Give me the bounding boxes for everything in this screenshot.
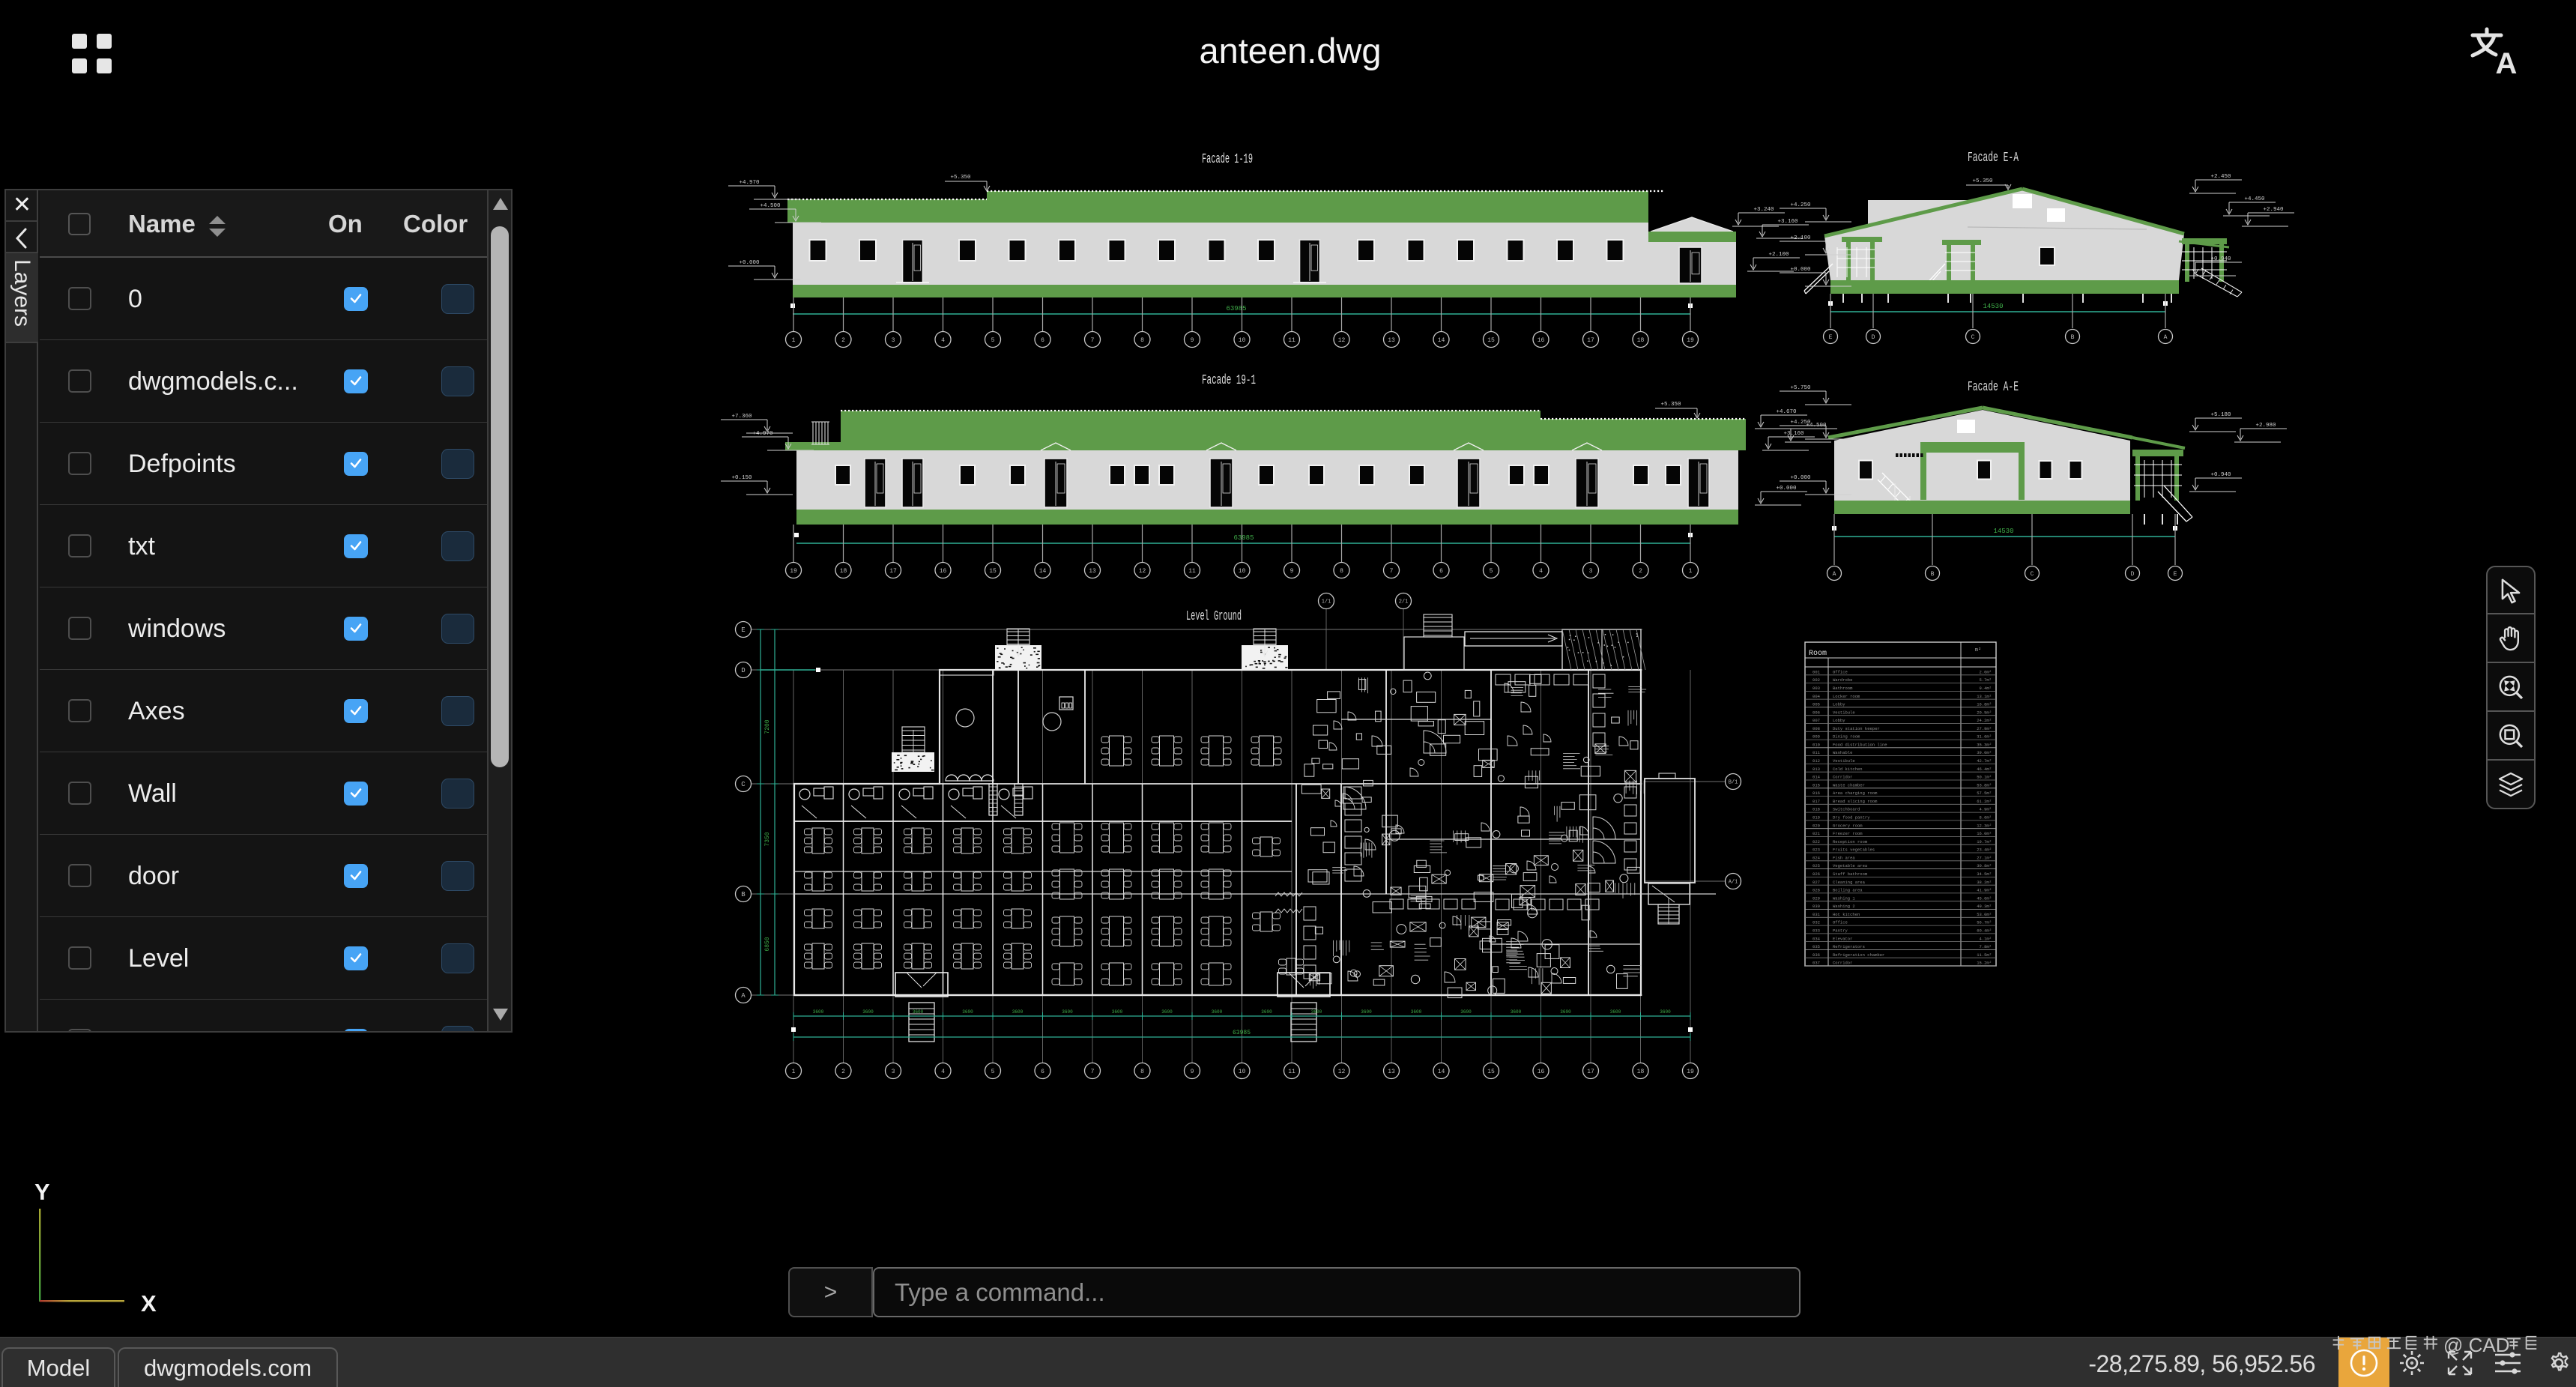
svg-text:15: 15 [1487,337,1495,344]
svg-text:Facade A-E: Facade A-E [1968,380,2019,395]
svg-text:Dining room: Dining room [1833,734,1860,740]
svg-text:Office: Office [1833,669,1848,674]
svg-text:3600: 3600 [1361,1009,1372,1015]
svg-text:+3.240: +3.240 [1753,207,1774,213]
svg-text:+3.160: +3.160 [1783,431,1804,437]
svg-text:15.2m²: 15.2m² [1977,961,1992,966]
svg-text:+5.350: +5.350 [1660,402,1681,408]
svg-text:16: 16 [1538,1069,1545,1075]
svg-text:Area charging room: Area charging room [1833,791,1878,796]
svg-text:A: A [1833,571,1836,578]
svg-text:033: 033 [1812,928,1820,934]
svg-text:+2.980: +2.980 [2255,423,2276,429]
svg-text:3600: 3600 [1161,1009,1173,1015]
svg-text:3600: 3600 [1112,1009,1123,1015]
svg-text:13.1m²: 13.1m² [1977,694,1992,699]
svg-text:7: 7 [1390,568,1394,575]
svg-text:+7.360: +7.360 [731,414,752,420]
svg-text:1: 1 [792,337,796,344]
svg-text:+0.000: +0.000 [1790,475,1811,481]
svg-text:Reception room: Reception room [1833,839,1868,844]
svg-text:30.8m²: 30.8m² [1977,863,1992,868]
svg-text:C: C [741,781,746,788]
svg-text:50.1m²: 50.1m² [1977,775,1992,780]
svg-text:Pantry: Pantry [1833,928,1848,934]
svg-text:E: E [741,626,745,634]
svg-text:6: 6 [1439,568,1443,575]
svg-text:007: 007 [1812,718,1820,723]
svg-text:4: 4 [941,1069,945,1075]
svg-text:Dry food pantry: Dry food pantry [1833,815,1870,821]
svg-text:Hot kitchen: Hot kitchen [1833,912,1860,917]
svg-text:11: 11 [1288,1069,1295,1075]
svg-text:Vestibule: Vestibule [1833,710,1855,715]
svg-text:2: 2 [841,337,845,344]
svg-text:Grocery room: Grocery room [1833,823,1863,828]
svg-text:2: 2 [1639,568,1642,575]
svg-text:16: 16 [1538,337,1545,344]
svg-text:5: 5 [991,337,995,344]
svg-text:037: 037 [1812,961,1820,966]
svg-text:+4.670: +4.670 [1776,409,1797,415]
svg-text:B: B [741,891,746,898]
svg-text:11.5m²: 11.5m² [1977,952,1992,958]
svg-text:003: 003 [1812,686,1820,691]
svg-text:+0.150: +0.150 [731,475,752,481]
svg-text:7350: 7350 [764,832,771,846]
svg-text:3600: 3600 [1212,1009,1223,1015]
svg-text:Bread slicing room: Bread slicing room [1833,799,1878,804]
svg-text:63985: 63985 [1233,1030,1251,1036]
svg-text:2/1: 2/1 [1399,599,1409,605]
svg-text:Washable: Washable [1833,750,1852,755]
svg-text:+5.350: +5.350 [1972,178,1993,184]
svg-text:Waste chamber: Waste chamber [1833,782,1865,788]
svg-text:Locker room: Locker room [1833,694,1860,699]
svg-text:Vestibule: Vestibule [1833,758,1855,764]
svg-text:Facade 1-19: Facade 1-19 [1202,152,1253,167]
svg-text:+5.180: +5.180 [2210,412,2231,418]
svg-text:Boiling area: Boiling area [1833,888,1863,893]
svg-text:61.2m²: 61.2m² [1977,799,1992,804]
svg-text:8: 8 [1140,337,1144,344]
svg-text:42.7m²: 42.7m² [1977,758,1992,764]
svg-text:1/1: 1/1 [1322,599,1331,605]
svg-text:18: 18 [840,568,847,575]
svg-text:B/1: B/1 [1729,780,1738,786]
svg-text:2: 2 [841,1069,845,1075]
svg-text:24.2m²: 24.2m² [1977,718,1992,723]
svg-text:+2.450: +2.450 [2210,174,2231,180]
svg-text:Food distribution line: Food distribution line [1833,743,1887,748]
svg-text:Lobby: Lobby [1833,702,1845,707]
svg-text:10: 10 [1239,337,1246,344]
svg-text:5.7m²: 5.7m² [1979,677,1992,683]
svg-text:14530: 14530 [1983,303,2003,310]
svg-text:018: 018 [1812,807,1820,812]
svg-text:3600: 3600 [1610,1009,1621,1015]
svg-text:4.1m²: 4.1m² [1979,936,1992,941]
svg-text:009: 009 [1812,734,1820,740]
svg-text:8: 8 [1140,1069,1144,1075]
svg-text:A: A [741,992,746,1000]
svg-text:029: 029 [1812,895,1820,901]
svg-text:3600: 3600 [1311,1009,1322,1015]
svg-text:20.5m²: 20.5m² [1977,710,1992,715]
svg-text:19: 19 [1687,337,1694,344]
svg-text:8.6m²: 8.6m² [1979,815,1992,821]
svg-text:+2.100: +2.100 [1768,252,1789,258]
svg-text:3600: 3600 [1460,1009,1472,1015]
svg-text:B: B [2071,334,2075,341]
svg-text:Freezer room: Freezer room [1833,831,1863,836]
svg-text:7200: 7200 [764,719,771,734]
svg-text:23.4m²: 23.4m² [1977,847,1992,853]
svg-text:Fish area: Fish area [1833,855,1855,860]
svg-text:004: 004 [1812,694,1821,699]
svg-text:Refrigeration chamber: Refrigeration chamber [1833,952,1884,958]
svg-text:9: 9 [1191,337,1194,344]
svg-text:010: 010 [1812,743,1820,748]
svg-text:015: 015 [1812,782,1820,788]
svg-text:7.8m²: 7.8m² [1979,944,1992,949]
svg-text:036: 036 [1812,952,1820,958]
svg-text:+0.000: +0.000 [1790,267,1811,273]
svg-text:14: 14 [1438,337,1445,344]
svg-text:10: 10 [1239,568,1246,575]
svg-text:19.7m²: 19.7m² [1977,839,1992,844]
svg-text:012: 012 [1812,758,1820,764]
svg-text:020: 020 [1812,823,1820,828]
svg-text:C: C [2031,571,2034,578]
svg-text:Washing 2: Washing 2 [1833,904,1855,909]
svg-text:016: 016 [1812,791,1820,796]
svg-text:005: 005 [1812,702,1820,707]
svg-text:026: 026 [1812,871,1820,877]
svg-text:X: X [141,1290,157,1317]
svg-text:3: 3 [1589,568,1593,575]
svg-text:D: D [1872,334,1875,341]
svg-text:2.0m²: 2.0m² [1979,669,1992,674]
svg-text:60.4m²: 60.4m² [1977,928,1992,934]
svg-text:Elevator: Elevator [1833,936,1852,941]
svg-text:6: 6 [1041,1069,1044,1075]
svg-text:12: 12 [1139,568,1146,575]
svg-text:017: 017 [1812,799,1820,804]
svg-text:9.4m²: 9.4m² [1979,686,1992,691]
svg-text:Room: Room [1809,650,1827,658]
svg-text:+4.250: +4.250 [1790,202,1811,208]
svg-text:49.3m²: 49.3m² [1977,904,1992,909]
svg-text:Lobby: Lobby [1833,718,1845,723]
svg-text:Y: Y [34,1179,50,1205]
svg-text:Vegetable area: Vegetable area [1833,863,1868,868]
svg-text:27.1m²: 27.1m² [1977,855,1992,860]
svg-text:D: D [2131,571,2135,578]
svg-text:C: C [1971,334,1975,341]
svg-text:4: 4 [941,337,945,344]
svg-text:011: 011 [1812,750,1821,755]
svg-text:Staff bathroom: Staff bathroom [1833,871,1868,877]
svg-text:16: 16 [940,568,947,575]
svg-text:3600: 3600 [913,1009,924,1015]
svg-text:3600: 3600 [1560,1009,1571,1015]
svg-text:7: 7 [1091,337,1095,344]
svg-text:022: 022 [1812,839,1820,844]
svg-text:A: A [2496,47,2518,79]
svg-text:013: 013 [1812,767,1820,772]
svg-text:027: 027 [1812,880,1820,885]
svg-text:12: 12 [1338,1069,1346,1075]
svg-text:15: 15 [989,568,997,575]
svg-text:+4.250: +4.250 [1790,420,1811,426]
svg-text:41.9m²: 41.9m² [1977,888,1992,893]
svg-text:3600: 3600 [1660,1009,1671,1015]
svg-text:16.0m²: 16.0m² [1977,831,1992,836]
svg-text:6850: 6850 [764,937,771,951]
svg-text:8: 8 [1340,568,1343,575]
svg-text:63985: 63985 [1226,305,1246,312]
svg-text:035: 035 [1812,944,1820,949]
svg-text:031: 031 [1812,912,1821,917]
svg-text:5: 5 [991,1069,995,1075]
svg-text:028: 028 [1812,888,1820,893]
svg-text:11: 11 [1188,568,1196,575]
svg-text:Refrigerators: Refrigerators [1833,944,1865,949]
svg-text:+5.750: +5.750 [1790,385,1811,391]
svg-text:39.0m²: 39.0m² [1977,750,1992,755]
svg-text:Corridor: Corridor [1833,961,1852,966]
svg-text:002: 002 [1812,677,1820,683]
svg-text:Fruits vegetables: Fruits vegetables [1833,847,1875,853]
svg-text:030: 030 [1812,904,1820,909]
svg-text:Wardrobe: Wardrobe [1833,677,1852,683]
svg-text:A/1: A/1 [1729,880,1738,886]
svg-text:021: 021 [1812,831,1821,836]
svg-text:+0.940: +0.940 [2210,472,2231,478]
svg-text:m²: m² [1975,647,1981,653]
svg-text:+3.160: +3.160 [1777,219,1798,225]
svg-text:11: 11 [1288,337,1295,344]
svg-text:+2.940: +2.940 [2263,207,2284,213]
svg-text:Switchboard: Switchboard [1833,807,1860,812]
svg-text:4: 4 [1539,568,1543,575]
svg-text:3600: 3600 [1012,1009,1024,1015]
svg-text:+2.100: +2.100 [1790,235,1811,241]
svg-text:5: 5 [1490,568,1493,575]
svg-text:9: 9 [1290,568,1294,575]
svg-text:27.9m²: 27.9m² [1977,726,1992,731]
svg-text:Corridor: Corridor [1833,775,1852,780]
svg-text:+4.500: +4.500 [760,203,781,209]
svg-text:12.3m²: 12.3m² [1977,823,1992,828]
svg-text:14: 14 [1438,1069,1445,1075]
svg-text:53.8m²: 53.8m² [1977,782,1992,788]
svg-text:15: 15 [1487,1069,1495,1075]
svg-text:7: 7 [1091,1069,1095,1075]
svg-text:34.5m²: 34.5m² [1977,871,1992,877]
svg-text:034: 034 [1812,936,1821,941]
svg-text:024: 024 [1812,855,1821,860]
svg-text:53.0m²: 53.0m² [1977,912,1992,917]
svg-text:B: B [1931,571,1935,578]
svg-text:13: 13 [1388,337,1395,344]
svg-text:D: D [741,667,745,674]
svg-text:Facade E-A: Facade E-A [1968,151,2019,166]
svg-text:+4.970: +4.970 [752,431,773,437]
svg-text:3600: 3600 [813,1009,824,1015]
svg-text:18: 18 [1637,1069,1645,1075]
svg-text:+0.000: +0.000 [1776,486,1797,492]
svg-text:46.4m²: 46.4m² [1977,767,1992,772]
svg-text:10: 10 [1239,1069,1246,1075]
svg-text:Bathroom: Bathroom [1833,686,1853,691]
svg-text:17: 17 [1587,337,1594,344]
svg-text:Office: Office [1833,920,1848,925]
svg-text:E: E [2174,571,2177,578]
svg-text:3600: 3600 [962,1009,973,1015]
svg-text:13: 13 [1388,1069,1395,1075]
svg-text:008: 008 [1812,726,1820,731]
svg-text:19: 19 [790,568,797,575]
svg-text:12: 12 [1338,337,1346,344]
svg-text:+4.970: +4.970 [739,180,760,186]
svg-text:+4.450: +4.450 [2244,196,2265,202]
svg-text:Washing 1: Washing 1 [1833,895,1855,901]
svg-text:1: 1 [792,1069,796,1075]
svg-text:3600: 3600 [1411,1009,1422,1015]
svg-text:A: A [2164,334,2168,341]
svg-text:19: 19 [1687,1069,1694,1075]
svg-text:13: 13 [1089,568,1096,575]
svg-text:3600: 3600 [1511,1009,1522,1015]
svg-text:Duty station keeper: Duty station keeper [1833,726,1880,731]
svg-text:023: 023 [1812,847,1820,853]
svg-text:Cleaning area: Cleaning area [1833,880,1866,885]
svg-text:9: 9 [1191,1069,1194,1075]
svg-text:006: 006 [1812,710,1820,715]
svg-text:3600: 3600 [862,1009,874,1015]
svg-text:3600: 3600 [1261,1009,1272,1015]
svg-text:63985: 63985 [1233,534,1254,542]
svg-text:31.6m²: 31.6m² [1977,734,1992,740]
svg-text:56.7m²: 56.7m² [1977,920,1992,925]
svg-text:025: 025 [1812,863,1820,868]
svg-text:38.2m²: 38.2m² [1977,880,1992,885]
svg-text:3: 3 [892,337,895,344]
svg-text:18: 18 [1637,337,1645,344]
svg-text:014: 014 [1812,775,1821,780]
svg-text:+5.350: +5.350 [950,175,971,181]
svg-text:17: 17 [1587,1069,1594,1075]
svg-text:019: 019 [1812,815,1820,821]
svg-text:17: 17 [889,568,897,575]
svg-text:E: E [1829,334,1833,341]
svg-text:3: 3 [892,1069,895,1075]
svg-text:Cold kitchen: Cold kitchen [1833,767,1863,772]
svg-text:1: 1 [1689,568,1693,575]
svg-text:4.9m²: 4.9m² [1979,807,1992,812]
svg-text:57.5m²: 57.5m² [1977,791,1992,796]
svg-text:35.3m²: 35.3m² [1977,743,1992,748]
svg-text:+0.000: +0.000 [739,260,760,266]
svg-text:14: 14 [1039,568,1047,575]
svg-text:Facade 19-1: Facade 19-1 [1202,373,1256,388]
svg-text:45.6m²: 45.6m² [1977,895,1992,901]
svg-text:001: 001 [1812,669,1821,674]
svg-text:6: 6 [1041,337,1044,344]
svg-text:16.8m²: 16.8m² [1977,702,1992,707]
svg-text:Level Ground: Level Ground [1186,609,1242,624]
svg-text:3600: 3600 [1062,1009,1073,1015]
svg-text:+0.940: +0.940 [2210,256,2231,262]
svg-text:032: 032 [1812,920,1820,925]
svg-text:14530: 14530 [1993,528,2013,535]
